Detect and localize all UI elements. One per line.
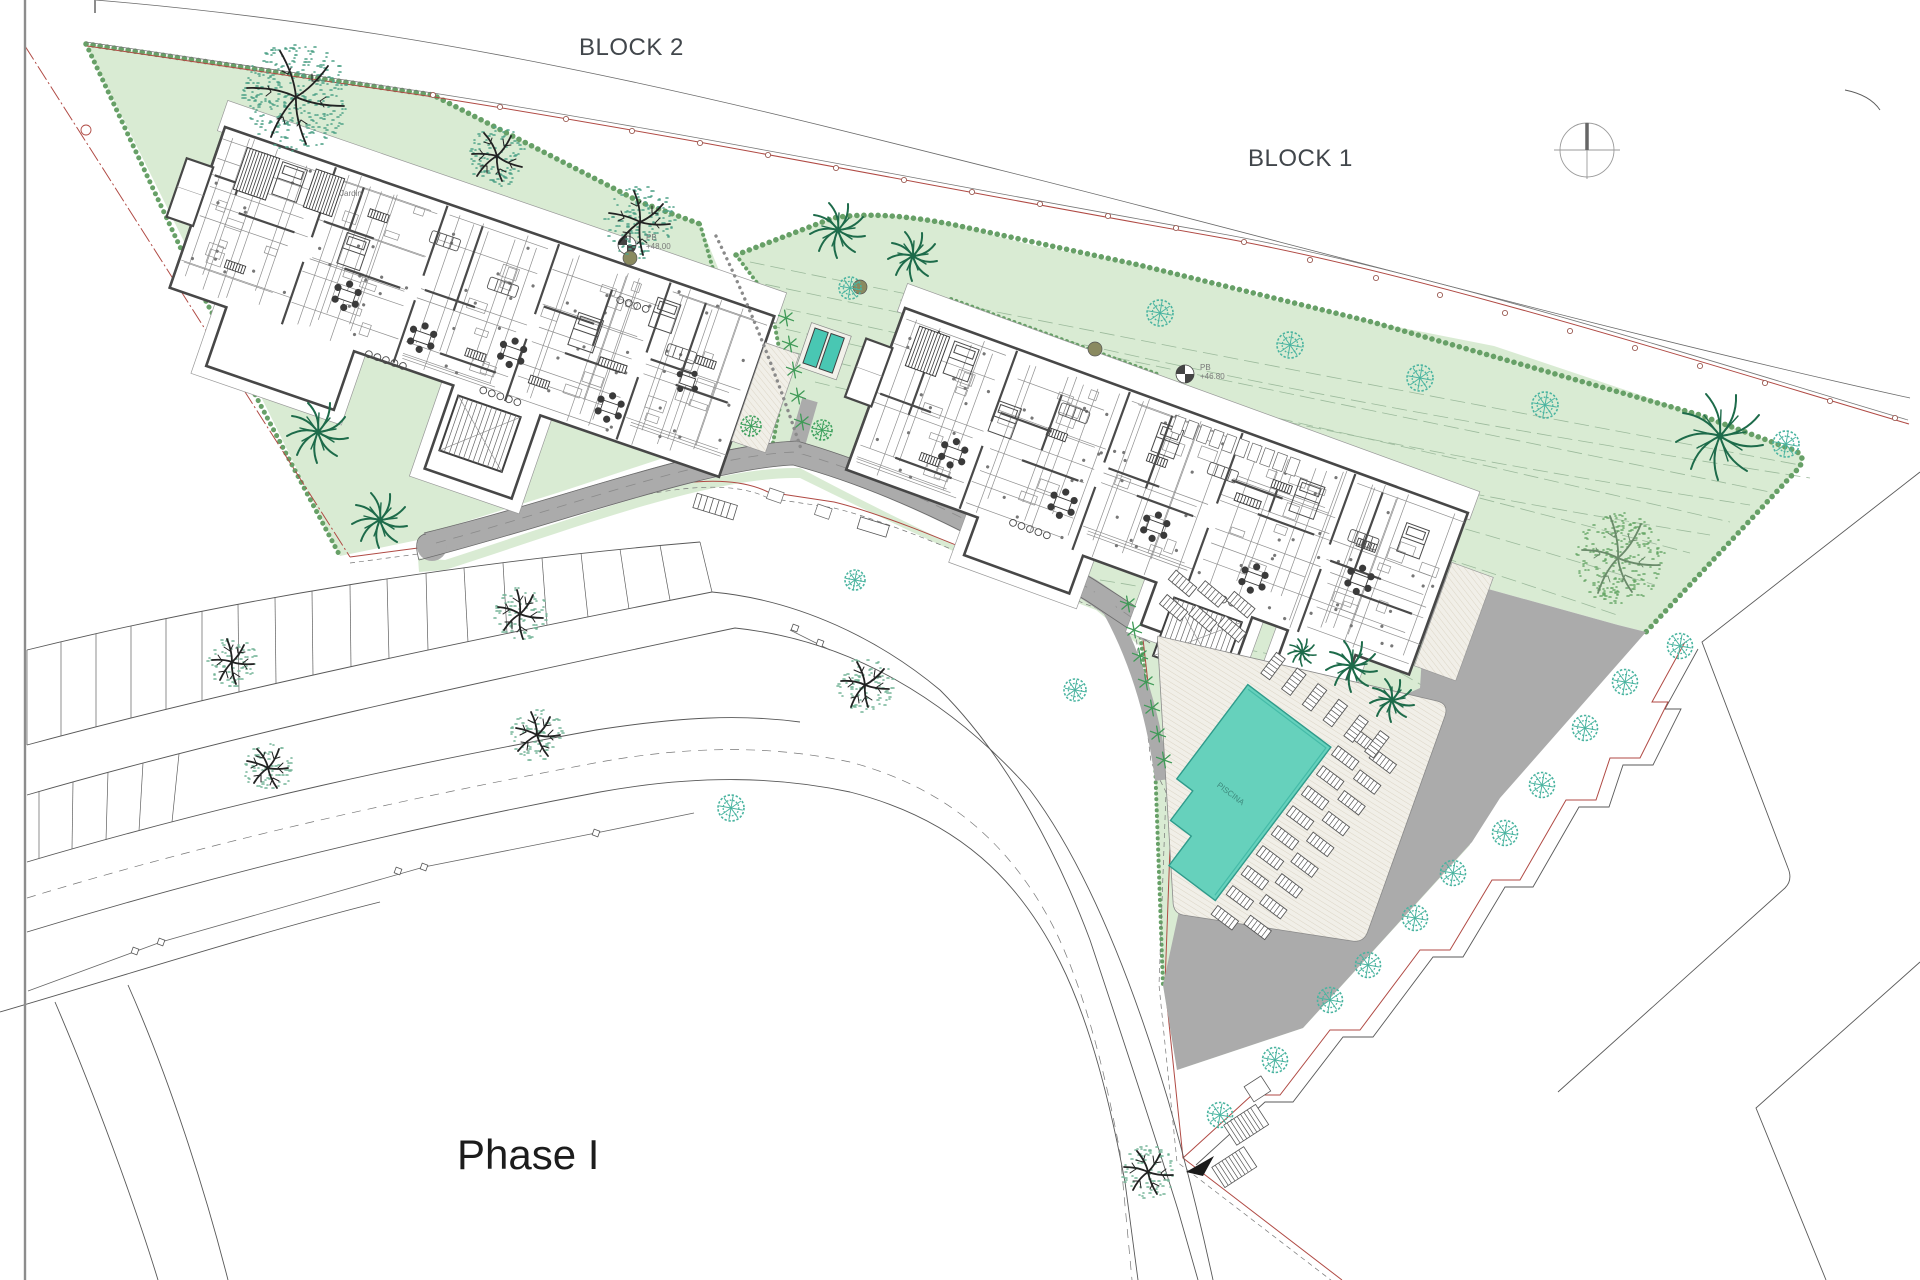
svg-text:+48.00: +48.00 [646, 242, 671, 251]
svg-text:BLOCK 1: BLOCK 1 [1248, 145, 1353, 172]
svg-text:Jardin: Jardin [340, 189, 362, 198]
svg-text:BLOCK 2: BLOCK 2 [579, 34, 684, 61]
svg-text:Phase I: Phase I [457, 1131, 599, 1178]
svg-text:PB: PB [1200, 363, 1211, 372]
svg-text:PB: PB [646, 233, 657, 242]
svg-text:+46.80: +46.80 [1200, 372, 1225, 381]
